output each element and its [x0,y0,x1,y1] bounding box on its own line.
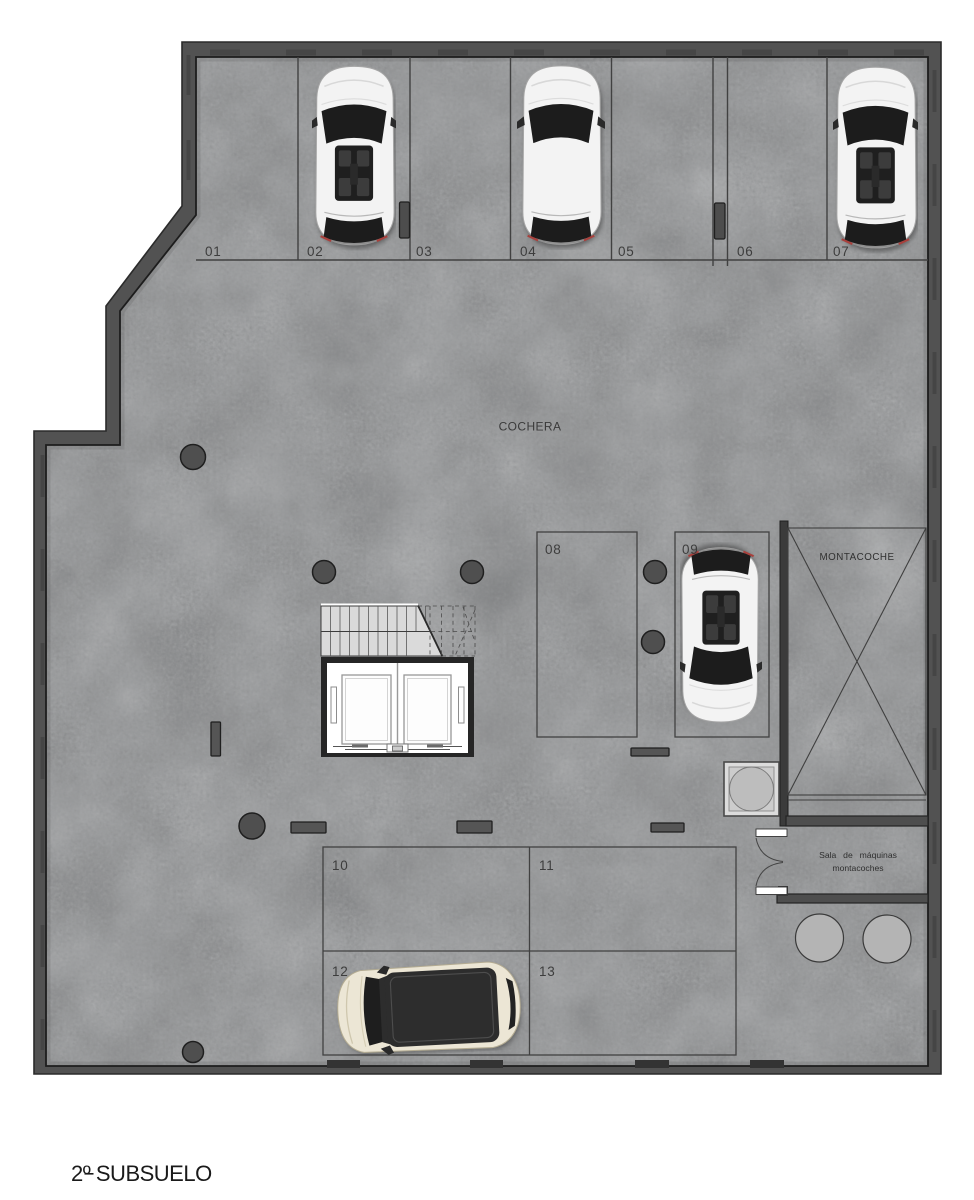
svg-text:08: 08 [545,542,562,557]
svg-text:05: 05 [618,244,635,259]
svg-text:07: 07 [833,244,850,259]
svg-text:01: 01 [205,244,222,259]
svg-text:02: 02 [307,244,324,259]
svg-text:06: 06 [737,244,754,259]
svg-text:12: 12 [332,964,349,979]
svg-text:COCHERA: COCHERA [499,420,562,434]
svg-text:13: 13 [539,964,556,979]
svg-text:MONTACOCHE: MONTACOCHE [819,552,894,563]
svg-text:montacoches: montacoches [832,863,883,873]
svg-text:Sala de máquinas: Sala de máquinas [819,850,897,860]
svg-text:09: 09 [682,542,699,557]
svg-text:03: 03 [416,244,433,259]
svg-text:04: 04 [520,244,537,259]
svg-text:11: 11 [539,858,555,873]
svg-text:10: 10 [332,858,349,873]
